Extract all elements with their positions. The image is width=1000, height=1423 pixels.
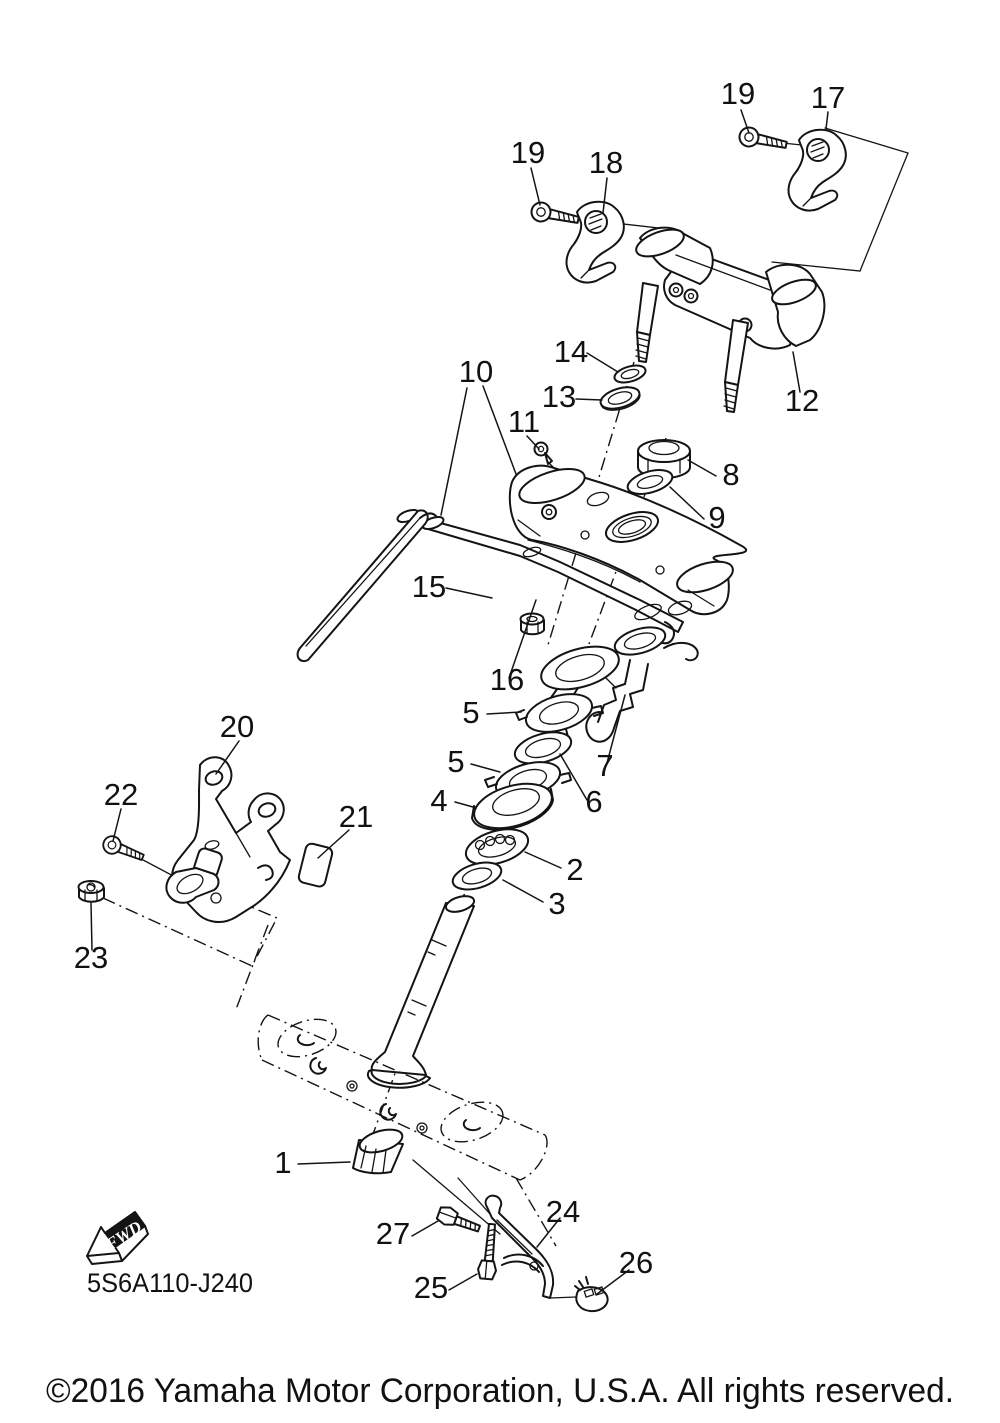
callout-21: 21 [339,799,373,834]
bearing-race-1 [353,1125,405,1173]
socket-bolt-19-left [530,201,580,229]
callout-16: 16 [490,662,524,697]
callout-5-lower: 5 [447,744,464,779]
callout-15: 15 [412,569,446,604]
callout-2: 2 [566,852,583,887]
callout-4: 4 [430,783,447,818]
callout-26: 26 [619,1245,653,1280]
callout-27: 27 [376,1216,410,1251]
callout-14: 14 [554,334,588,369]
socket-bolt-19-top [738,126,788,154]
callout-11: 11 [508,404,540,439]
callout-9: 9 [708,500,725,535]
ring-nut-5-upper [516,687,603,739]
callout-25: 25 [414,1270,448,1305]
callout-19-left: 19 [511,135,545,170]
callout-24: 24 [546,1194,580,1229]
diagram-code: 5S6A110-J240 [87,1268,253,1298]
callout-1: 1 [274,1145,291,1180]
callout-20: 20 [220,709,254,744]
callout-23: 23 [74,940,108,975]
callout-22: 22 [104,777,138,812]
handlebar-clamp-18 [567,202,624,283]
callout-labels: 19 17 19 18 14 13 12 10 11 8 9 15 16 5 7… [74,76,845,1305]
callout-6: 6 [585,784,602,819]
bolt-11 [535,443,553,465]
washer-14 [613,362,648,385]
callout-19-top: 19 [721,76,755,111]
callout-8: 8 [722,457,739,492]
callout-5-upper: 5 [462,695,479,730]
callout-10: 10 [459,354,493,389]
seal-13 [598,383,642,412]
clip-26 [575,1277,608,1311]
callout-17: 17 [811,80,845,115]
handlebar-clamp-17 [789,130,846,211]
parts-diagram-page: 19 17 19 18 14 13 12 10 11 8 9 15 16 5 7… [0,0,1000,1423]
callout-7: 7 [596,748,613,783]
copyright-text: ©2016 Yamaha Motor Corporation, U.S.A. A… [46,1372,954,1410]
callout-3: 3 [548,886,565,921]
washer-9 [625,466,675,499]
nut-16 [521,614,545,635]
steering-exploded-diagram: 19 17 19 18 14 13 12 10 11 8 9 15 16 5 7… [0,0,1000,1423]
steering-stem [368,893,476,1087]
callout-18: 18 [589,145,623,180]
flange-bolt-27 [436,1205,483,1237]
nut-23 [79,881,105,902]
bracket-20 [166,757,290,922]
fwd-arrow-icon: FWD [87,1212,148,1264]
wire-guide-7 [586,622,697,741]
socket-bolt-22 [101,834,146,866]
callout-12: 12 [785,383,819,418]
callout-13: 13 [542,379,576,414]
